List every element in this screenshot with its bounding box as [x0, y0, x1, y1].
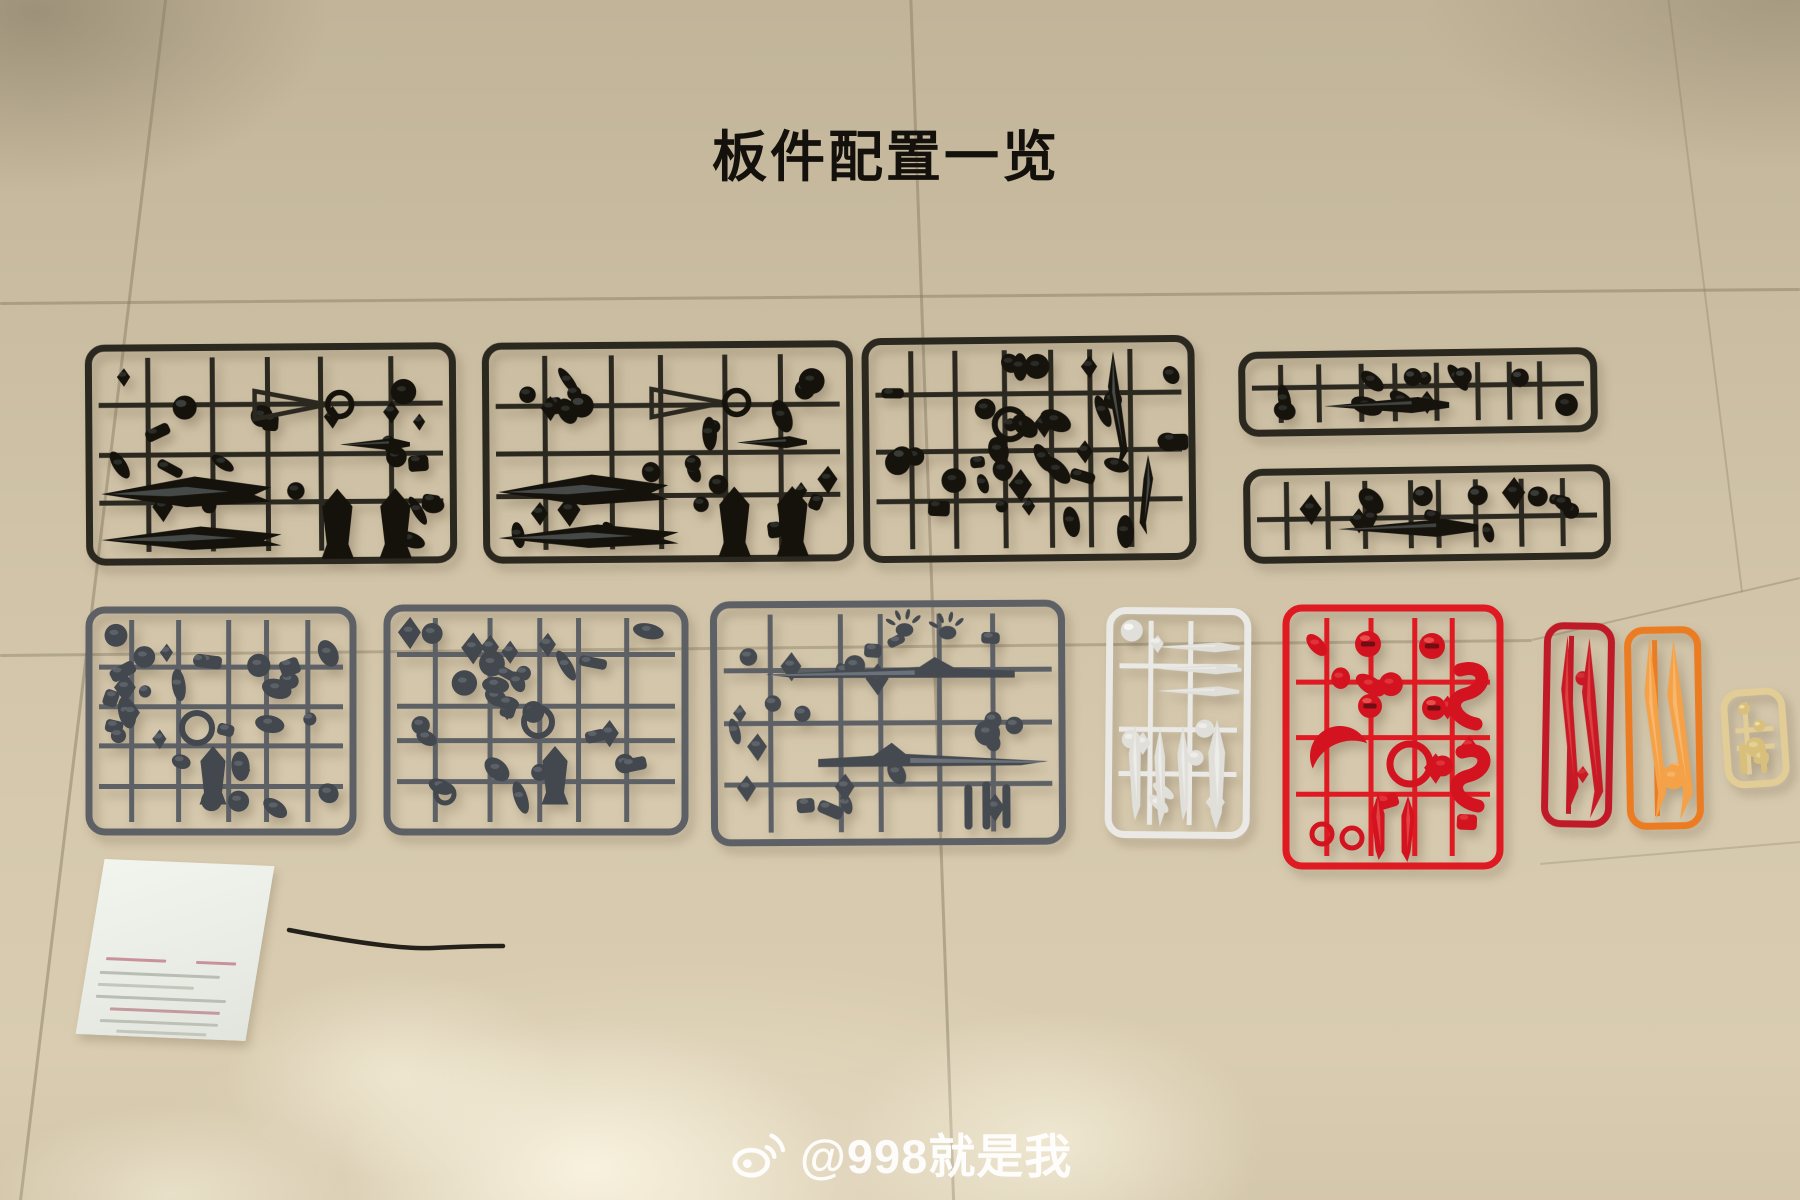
sprue-gray-d2 — [383, 604, 689, 836]
decal-markings — [100, 971, 220, 979]
decal-markings — [98, 983, 194, 990]
sprue-gray-d1 — [85, 606, 357, 836]
watermark-handle: @998就是我 — [800, 1118, 1072, 1187]
decal-markings — [196, 961, 236, 966]
sprue-black-a2 — [481, 340, 855, 565]
decal-sheet — [76, 859, 275, 1041]
light-glare — [225, 970, 565, 1180]
tile-grout-line — [1667, 0, 1743, 592]
decal-markings — [106, 957, 166, 962]
decal-markings — [110, 1007, 220, 1015]
weibo-icon — [728, 1126, 786, 1180]
sprue-yellow-small — [1719, 686, 1792, 790]
sprue-black-a1 — [84, 342, 458, 567]
tile-grout-line — [0, 288, 1800, 304]
decal-markings — [100, 1019, 218, 1027]
floor-photo-scene: 板件配置一览 @998就是我 — [0, 0, 1800, 1200]
sprue-black-c1 — [1237, 346, 1598, 437]
decal-markings — [116, 1030, 206, 1037]
antenna-part — [283, 920, 509, 960]
sprue-gray-e — [709, 599, 1066, 847]
sprue-red-thin — [1540, 621, 1616, 828]
light-glare — [0, 1105, 350, 1200]
sprue-orange — [1623, 625, 1705, 830]
sprue-black-b — [861, 334, 1197, 563]
sprue-black-c2 — [1242, 463, 1611, 564]
tile-grout-line — [1540, 841, 1800, 865]
page-title: 板件配置一览 — [712, 112, 1060, 192]
watermark: @998就是我 — [728, 1118, 1072, 1187]
sprue-white — [1104, 606, 1252, 839]
sprue-red-f — [1282, 604, 1504, 870]
decal-markings — [96, 995, 226, 1003]
